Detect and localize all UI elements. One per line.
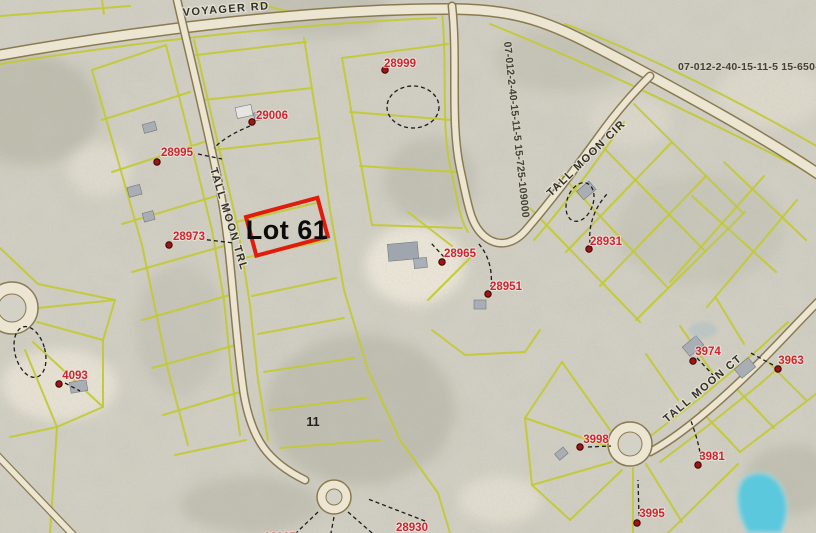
building: [474, 300, 486, 309]
small-pond: [689, 322, 717, 338]
lot-marker-29006: [249, 119, 255, 125]
parcel-id-truncated: 07-012-2-40-15-11-5 15-650-: [678, 61, 816, 73]
lot-number-28951: 28951: [490, 281, 523, 293]
lot-number-3998: 3998: [583, 434, 609, 446]
lot-number-3974: 3974: [695, 346, 721, 358]
cul-de-sac-island: [618, 432, 642, 456]
lot-number-28973: 28973: [173, 231, 205, 243]
highlight-label: Lot 61: [246, 215, 329, 245]
lot-number-28930: 28930: [396, 522, 428, 533]
lot-marker-28973: [166, 242, 172, 248]
lot-number-28931: 28931: [590, 236, 623, 248]
lot-number-3995: 3995: [639, 508, 665, 520]
cul-de-sac-island: [326, 489, 342, 505]
lot-marker-3974: [690, 358, 696, 364]
map-canvas: Lot 61 28999 29006 28995 28973 28965 289…: [0, 0, 816, 533]
cul-de-sac-island: [0, 294, 26, 322]
lot-number-29006: 29006: [256, 110, 288, 122]
aerial-parcel-map: Lot 61 28999 29006 28995 28973 28965 289…: [0, 0, 816, 533]
lot-number-3981: 3981: [699, 451, 725, 463]
building: [414, 257, 428, 268]
section-number-label: 11: [306, 415, 319, 429]
lot-marker-3995: [634, 520, 640, 526]
lot-marker-28995: [154, 159, 160, 165]
lot-number-28965: 28965: [444, 248, 477, 260]
lot-number-28999: 28999: [384, 58, 416, 70]
lot-number-4093: 4093: [62, 370, 88, 382]
lot-number-28995: 28995: [161, 147, 194, 159]
lot-number-3963: 3963: [778, 355, 804, 367]
